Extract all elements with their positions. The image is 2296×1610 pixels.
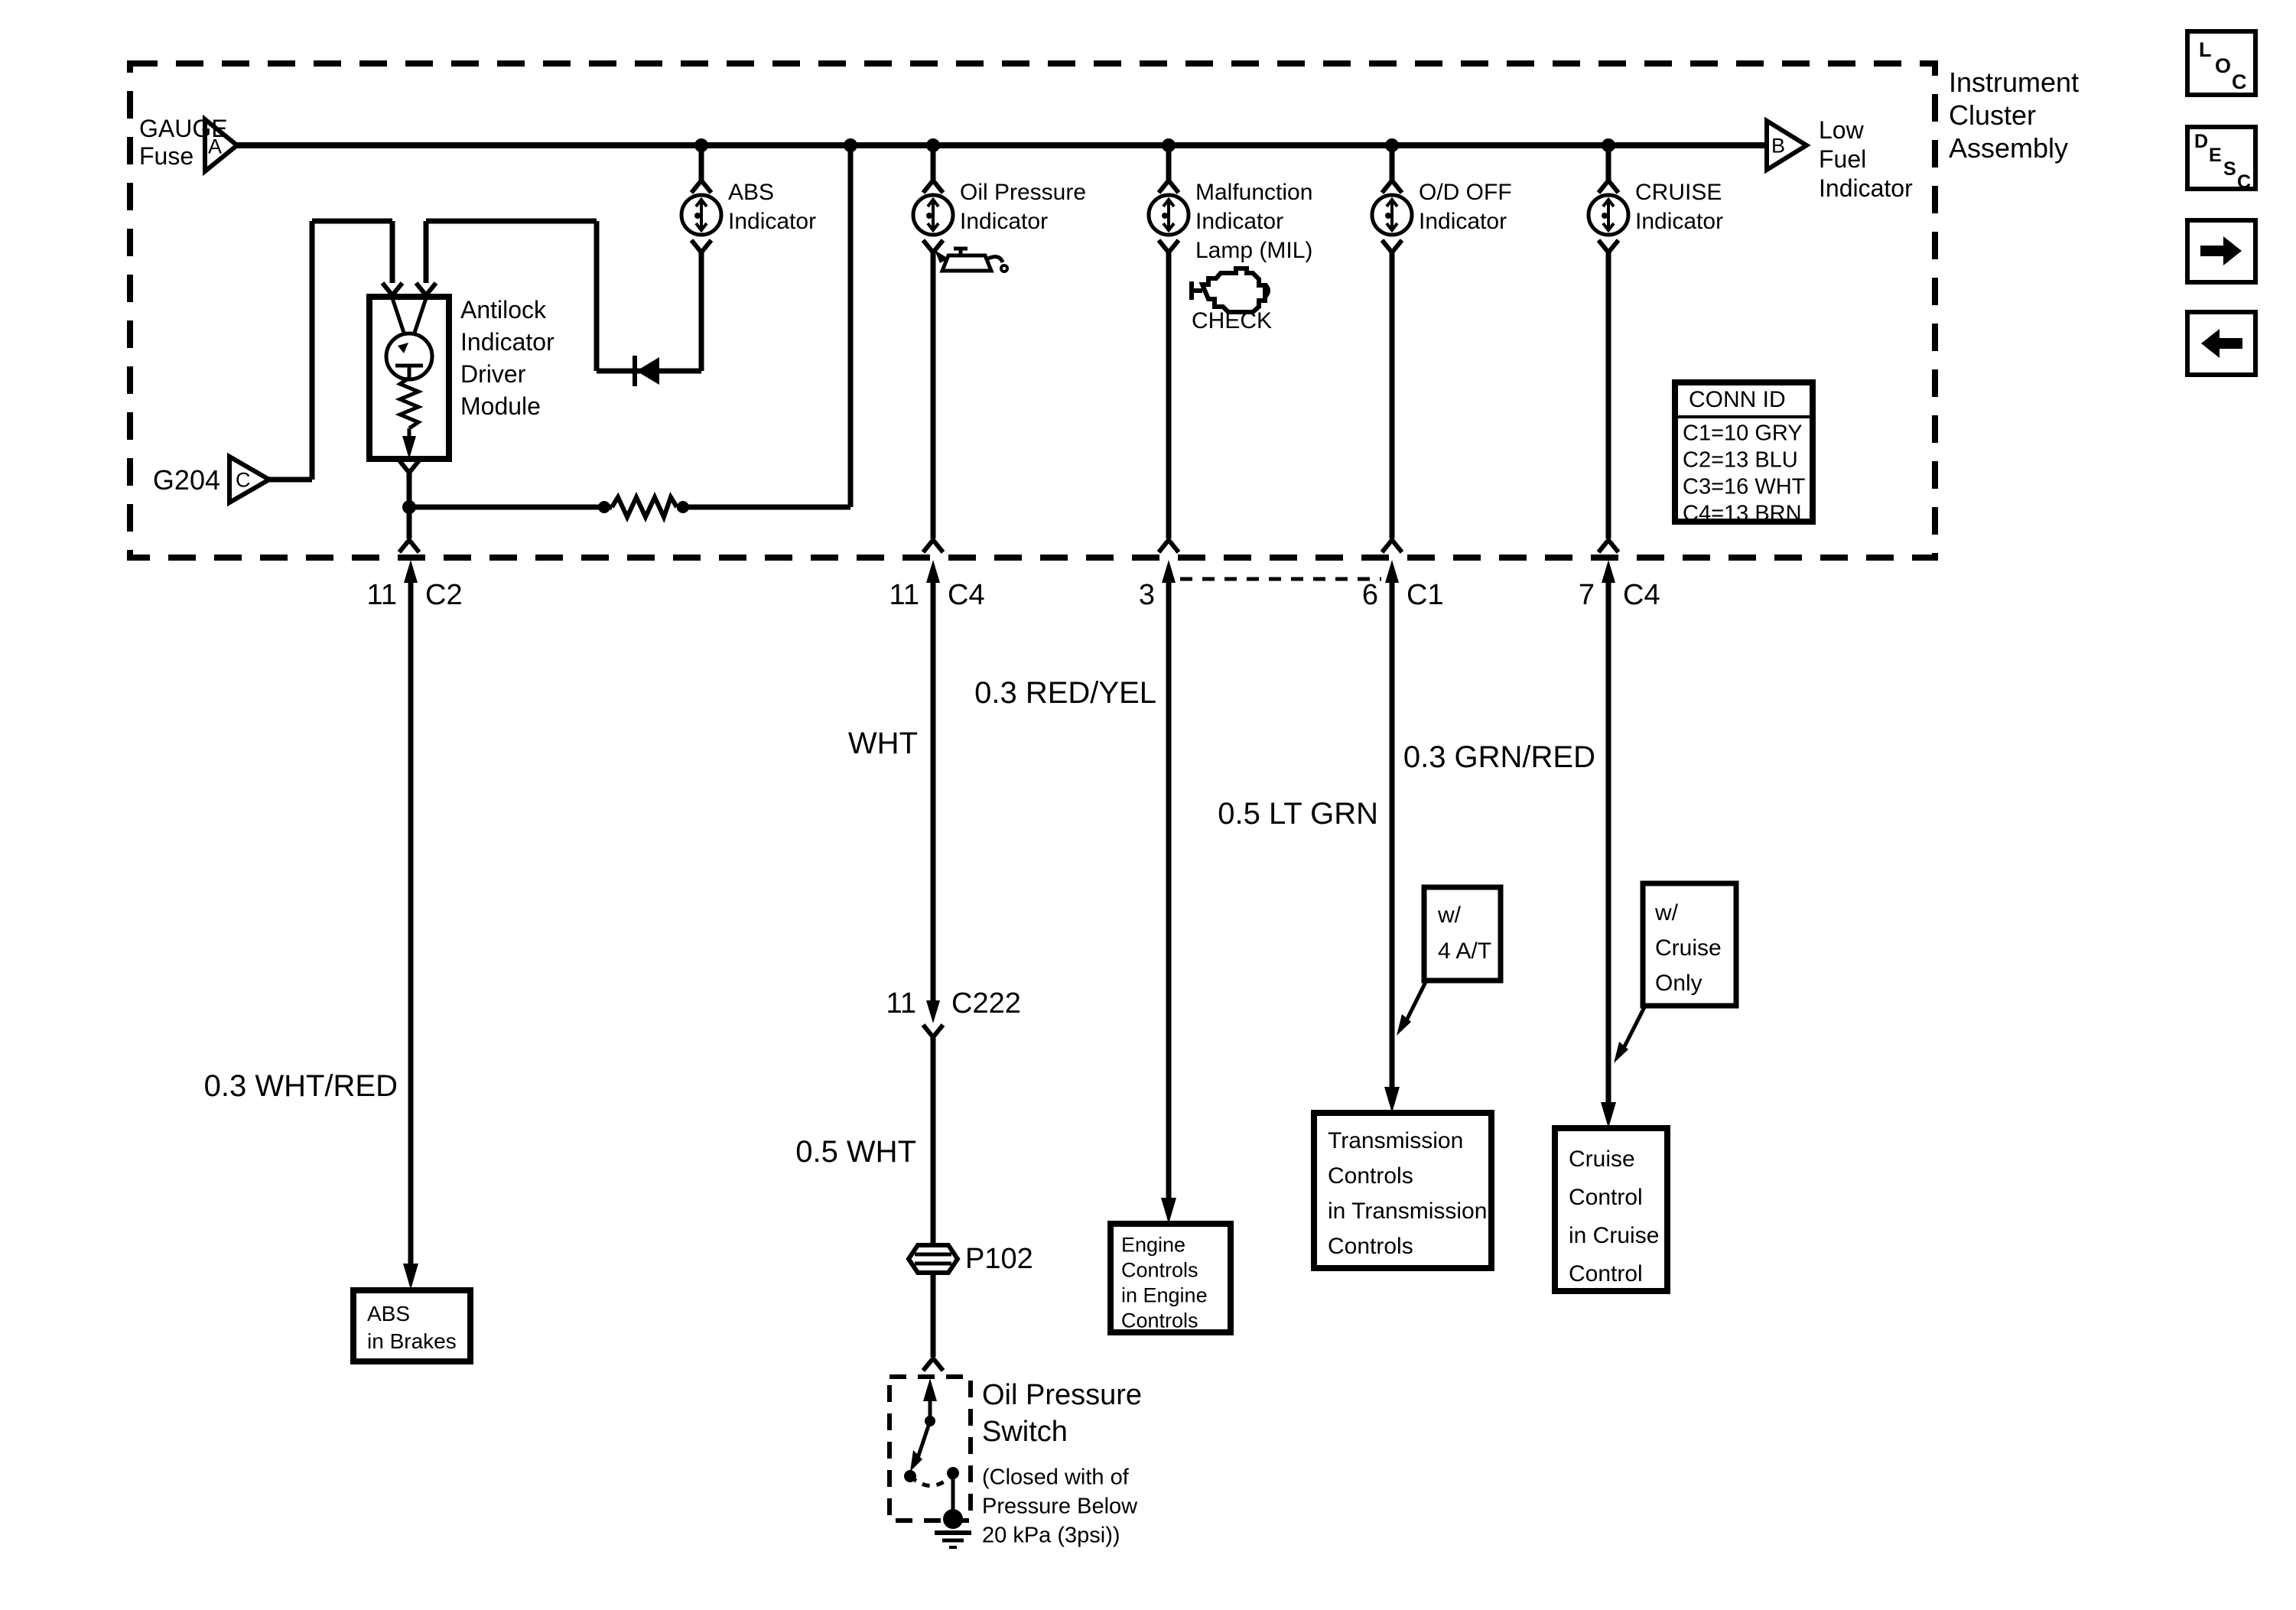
wiring-diagram-page: GAUGE Fuse A B C G204 Low Fuel Indicator… [0,0,2296,1610]
oil-can-icon [935,249,1007,272]
connector-c4-cruise-name: C4 [1623,581,1660,610]
antilock-driver-module-box [369,297,449,473]
desc-letter-e: E [2209,146,2222,165]
connector-c4-oil-name: C4 [948,581,985,610]
instrument-cluster-boundary [130,63,1935,558]
g204-label: G204 [138,467,220,494]
dest-cruise-line1: Cruise [1569,1148,1635,1171]
dest-engine-line1: Engine [1121,1235,1185,1256]
low-fuel-label-line3: Indicator [1819,176,1913,200]
dest-cruise-line4: Control [1569,1263,1643,1286]
page-title-line3: Assembly [1949,135,2068,162]
dest-abs-line1: ABS [367,1303,410,1325]
terminal-b-letter: B [1771,136,1785,157]
connector-c222-pin: 11 [849,989,916,1018]
conn-id-row2: C2=13 BLU [1683,450,1798,472]
annotation-cruise-only-line3: Only [1655,972,1702,995]
cruise-indicator-bulb-icon [1589,145,1628,252]
dest-abs-line2: in Brakes [367,1331,457,1352]
abs-diode-wire [416,221,701,386]
dest-trans-line4: Controls [1328,1235,1413,1258]
mil-indicator-bulb-icon [1149,145,1189,252]
dest-engine-line4: Controls [1121,1311,1198,1332]
oil-pressure-indicator-bulb-icon [913,145,953,252]
low-fuel-label-line2: Fuel [1819,147,1866,171]
check-engine-icon [1192,268,1268,312]
connector-c2-name: C2 [425,581,463,610]
arrow-right-icon [2190,223,2253,280]
desc-letter-c: C [2237,173,2251,192]
oil-switch-desc-line1: (Closed with of [982,1467,1129,1489]
dest-trans-line2: Controls [1328,1165,1413,1188]
check-label: CHECK [1192,310,1272,333]
module-label-line2: Indicator [460,330,554,354]
terminal-a-letter: A [208,137,222,158]
wire-label-abs: 0.3 WHT/RED [184,1071,398,1101]
conn-id-row1: C1=10 GRY [1683,423,1803,445]
wire-label-oil-lower: 0.5 WHT [719,1137,916,1167]
loc-letter-o: O [2215,56,2231,76]
wire-label-cruise: 0.3 GRN/RED [1381,742,1595,772]
module-resistor-icon [400,378,418,428]
connector-c222-name: C222 [951,989,1021,1018]
od-off-indicator-bulb-icon [1372,145,1412,252]
conn-id-header: CONN ID [1689,389,1786,411]
annotation-cruise-only-line2: Cruise [1655,937,1722,960]
annotation-cruise-only-line1: w/ [1655,902,1678,925]
gauge-fuse-bus-wire [205,119,1807,171]
resistor-icon [612,497,677,517]
oil-switch-title-line2: Switch [982,1417,1068,1446]
loc-button[interactable]: L O C [2185,29,2258,97]
dest-trans-line3: in Transmission [1328,1200,1487,1223]
module-label-line3: Driver [460,362,525,386]
desc-letter-d: D [2194,132,2208,151]
conn-id-row4: C4=13 BRN [1683,503,1802,525]
dest-engine-line2: Controls [1121,1260,1198,1281]
desc-button[interactable]: D E S C [2185,125,2258,191]
p102-grommet-icon [909,1245,958,1273]
od-indicator-label-line2: Indicator [1419,210,1507,233]
dest-cruise-line3: in Cruise [1569,1225,1659,1247]
abs-indicator-label-line1: ABS [728,181,774,204]
arrow-left-icon [2190,314,2253,372]
conn-id-row3: C3=16 WHT [1683,476,1805,499]
page-title-line1: Instrument [1949,69,2079,96]
low-fuel-label-line1: Low [1819,118,1864,142]
module-label-line4: Module [460,394,541,418]
page-title-line2: Cluster [1949,102,2036,129]
with-4at-annotation-box [1424,887,1501,981]
wire-label-mil: 0.3 RED/YEL [942,678,1156,708]
abs-indicator-bulb-icon [681,145,721,252]
mil-indicator-label-line3: Lamp (MIL) [1195,239,1312,262]
abs-indicator-label-line2: Indicator [728,210,816,233]
oil-switch-title-line1: Oil Pressure [982,1381,1142,1410]
oil-indicator-label-line1: Oil Pressure [960,181,1086,204]
annotation-4at-line1: w/ [1438,904,1461,927]
connector-c1-pin: 6 [1309,581,1378,610]
loc-letter-c: C [2232,72,2247,93]
mil-wire-run [1111,612,1231,1332]
oil-switch-desc-line2: Pressure Below [982,1496,1137,1518]
cruise-indicator-label-line2: Indicator [1635,210,1723,233]
gauge-fuse-label-line2: Fuse [139,144,194,168]
connector-c4-cruise-pin: 7 [1526,581,1595,610]
connector-pin3: 3 [1086,581,1155,610]
connector-c4-oil-pin: 11 [850,581,919,610]
connector-c2-pin: 11 [328,581,397,610]
mil-indicator-label-line1: Malfunction [1195,181,1312,204]
terminal-c-letter: C [236,470,251,491]
wire-label-oil-upper: WHT [765,728,918,759]
ground-icon [935,1533,971,1547]
annotation-4at-line2: 4 A/T [1438,940,1491,963]
diode-icon [636,357,659,385]
connector-c1-name: C1 [1407,581,1444,610]
desc-letter-s: S [2223,160,2236,179]
od-indicator-label-line1: O/D OFF [1419,181,1512,204]
dest-trans-line1: Transmission [1328,1130,1463,1153]
wiring-linework [0,0,2296,1610]
oil-switch-desc-line3: 20 kPa (3psi)) [982,1525,1120,1547]
abs-wire-run [353,612,470,1361]
connector-p102-name: P102 [965,1244,1033,1273]
prev-page-button[interactable] [2185,310,2258,377]
border-exit-chevrons [923,252,1618,552]
wire-label-od: 0.5 LT GRN [1187,798,1378,829]
loc-letter-l: L [2199,40,2212,60]
cruise-indicator-label-line1: CRUISE [1635,181,1722,204]
oil-pressure-switch-box [889,1377,971,1547]
dest-engine-line3: in Engine [1121,1286,1208,1306]
mil-indicator-label-line2: Indicator [1195,210,1283,233]
dest-cruise-line2: Control [1569,1186,1643,1209]
module-label-line1: Antilock [460,298,546,322]
next-page-button[interactable] [2185,218,2258,285]
oil-indicator-label-line2: Indicator [960,210,1048,233]
